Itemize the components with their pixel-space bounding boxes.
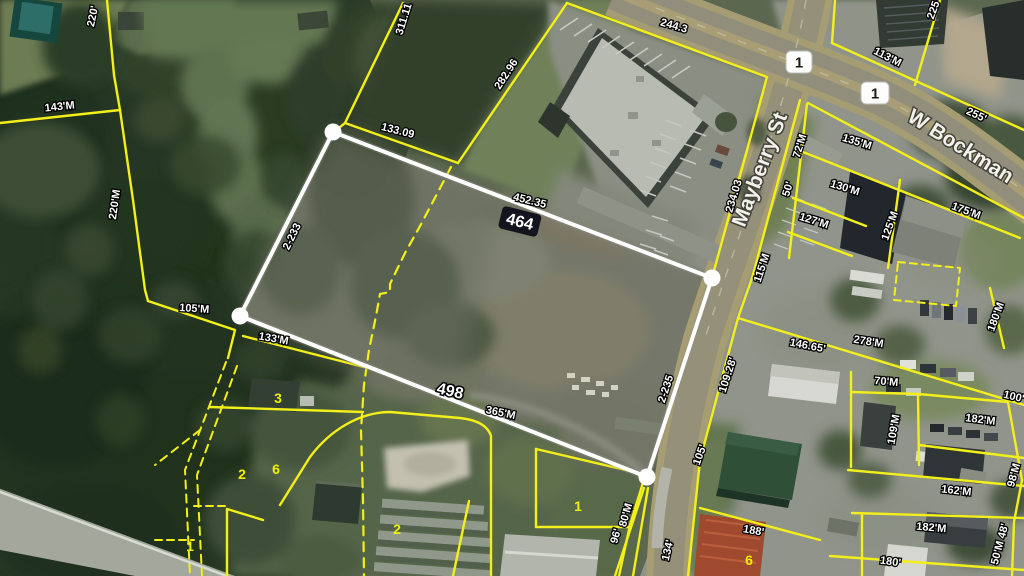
svg-text:70'M: 70'M — [874, 375, 899, 389]
svg-text:105'M: 105'M — [179, 302, 210, 316]
svg-text:1: 1 — [795, 55, 803, 72]
svg-text:6: 6 — [272, 461, 280, 477]
svg-text:3: 3 — [274, 390, 282, 406]
svg-text:6: 6 — [745, 552, 753, 568]
svg-text:2: 2 — [238, 466, 246, 482]
svg-text:1: 1 — [186, 538, 194, 554]
svg-text:2: 2 — [393, 521, 401, 537]
svg-text:1: 1 — [871, 86, 879, 103]
svg-text:1: 1 — [574, 498, 582, 514]
